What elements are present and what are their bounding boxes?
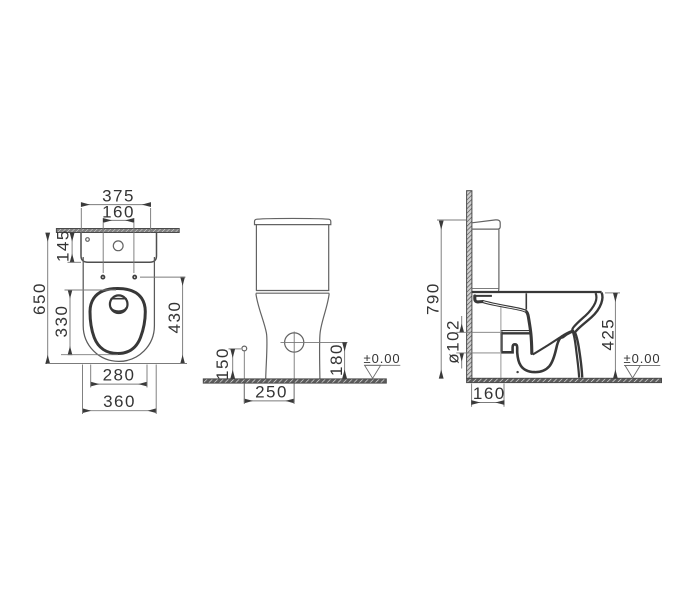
svg-text:425: 425 bbox=[598, 318, 617, 351]
svg-text:280: 280 bbox=[103, 366, 136, 385]
svg-text:150: 150 bbox=[213, 347, 232, 380]
svg-text:650: 650 bbox=[30, 282, 49, 315]
svg-text:160: 160 bbox=[473, 384, 506, 403]
svg-text:160: 160 bbox=[102, 203, 135, 222]
svg-text:360: 360 bbox=[103, 392, 136, 411]
svg-text:250: 250 bbox=[255, 382, 288, 401]
svg-text:±0.00: ±0.00 bbox=[624, 351, 661, 366]
svg-text:180: 180 bbox=[327, 343, 346, 376]
svg-text:145: 145 bbox=[54, 229, 73, 262]
svg-text:330: 330 bbox=[52, 305, 71, 338]
svg-text:ø102: ø102 bbox=[444, 319, 463, 364]
svg-text:790: 790 bbox=[423, 282, 442, 315]
svg-text:±0.00: ±0.00 bbox=[364, 351, 401, 366]
svg-text:430: 430 bbox=[165, 301, 184, 334]
